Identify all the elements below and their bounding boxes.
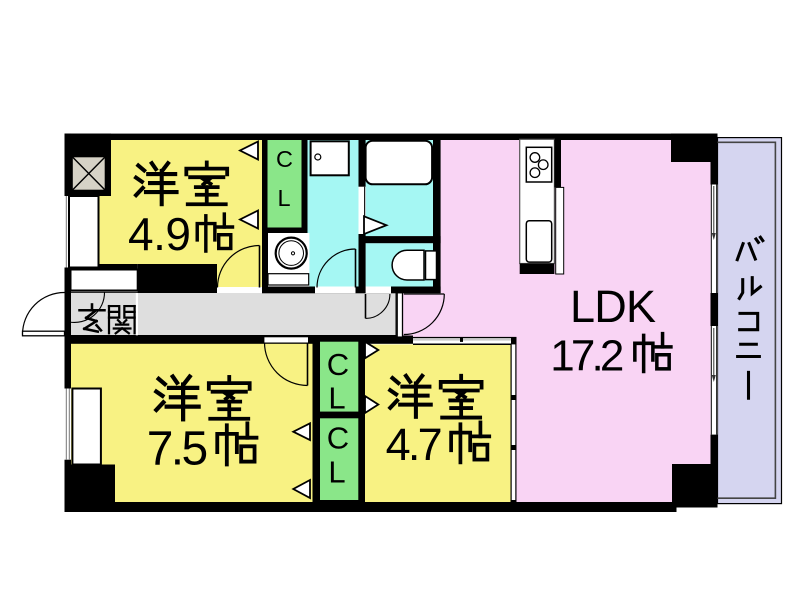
svg-text:17.2: 17.2 — [550, 332, 624, 381]
svg-text:7.5: 7.5 — [147, 423, 209, 476]
svg-text:L: L — [277, 185, 290, 211]
svg-text:C: C — [327, 347, 349, 382]
svg-text:L: L — [328, 381, 345, 416]
svg-text:L: L — [328, 455, 345, 490]
svg-text:C: C — [276, 146, 293, 172]
svg-text:C: C — [327, 421, 349, 456]
svg-text:LDK: LDK — [570, 281, 656, 332]
svg-text:4.9: 4.9 — [128, 208, 191, 260]
svg-text:4.7: 4.7 — [386, 419, 443, 470]
